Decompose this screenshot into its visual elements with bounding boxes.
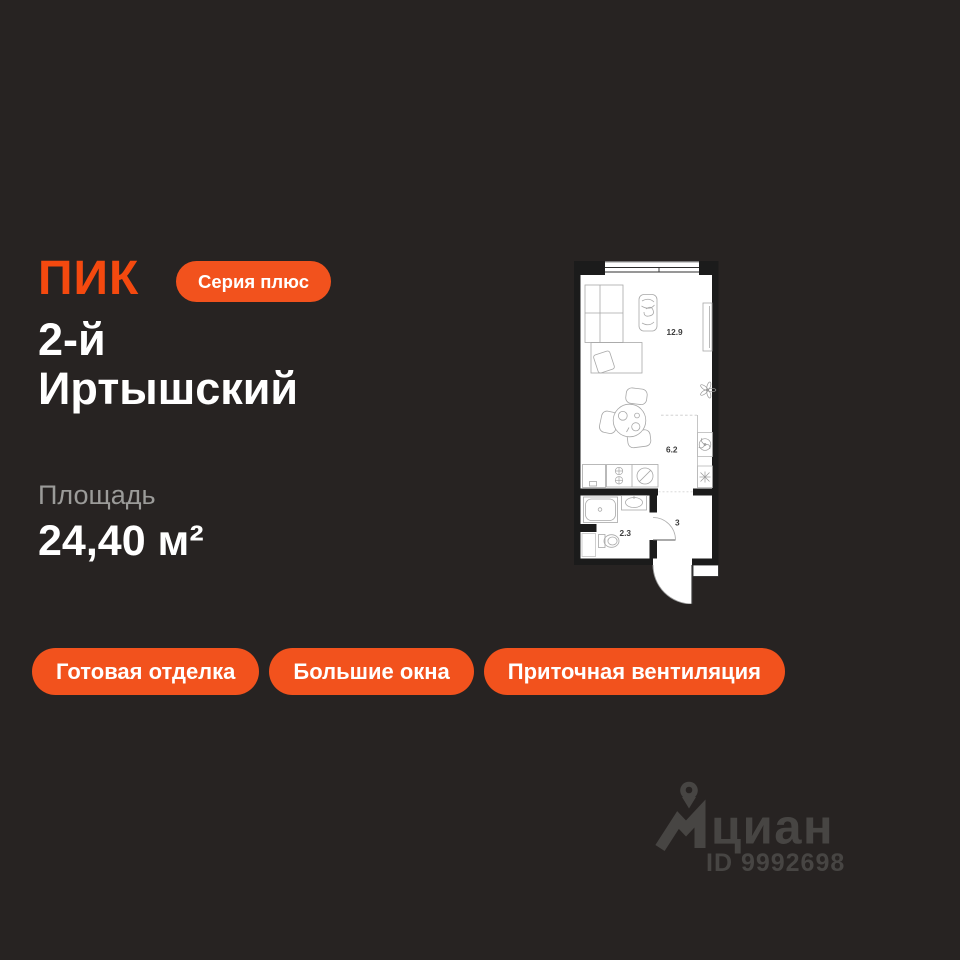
entrance-door-arc bbox=[653, 565, 719, 604]
area-label: Площадь bbox=[38, 480, 156, 511]
pik-logo: ПИК bbox=[38, 255, 139, 303]
room-area-label-kitchen: 6.2 bbox=[666, 445, 678, 455]
cian-watermark: циан ID 9992698 bbox=[648, 776, 873, 876]
feature-badge-ventilation: Приточная вентиляция bbox=[484, 648, 785, 695]
series-badge: Серия плюс bbox=[176, 261, 331, 302]
snowflake-vent-icon bbox=[700, 472, 711, 483]
cian-logo-mark bbox=[660, 814, 700, 849]
plan-background bbox=[574, 261, 719, 565]
feature-badges: Готовая отделка Большие окна Приточная в… bbox=[32, 648, 785, 695]
floorplan-diagram: 12.9 6.2 2.3 3 bbox=[574, 261, 719, 604]
project-title: 2-й Иртышский bbox=[38, 315, 298, 413]
listing-card: ПИК Серия плюс 2-й Иртышский Площадь 24,… bbox=[0, 0, 960, 960]
series-badge-label: Серия плюс bbox=[198, 271, 309, 293]
feature-badge-finishing: Готовая отделка bbox=[32, 648, 259, 695]
project-title-line2: Иртышский bbox=[38, 364, 298, 413]
room-area-label-living: 12.9 bbox=[667, 327, 684, 337]
feature-badge-windows: Большие окна bbox=[269, 648, 473, 695]
project-title-line1: 2-й bbox=[38, 315, 298, 364]
listing-id: ID 9992698 bbox=[706, 849, 845, 876]
room-area-label-bathroom: 2.3 bbox=[620, 528, 632, 538]
location-pin-icon bbox=[680, 782, 698, 809]
area-value: 24,40 м² bbox=[38, 518, 204, 564]
cian-logo-text: циан bbox=[711, 801, 834, 855]
room-area-label-hallway: 3 bbox=[675, 518, 680, 528]
